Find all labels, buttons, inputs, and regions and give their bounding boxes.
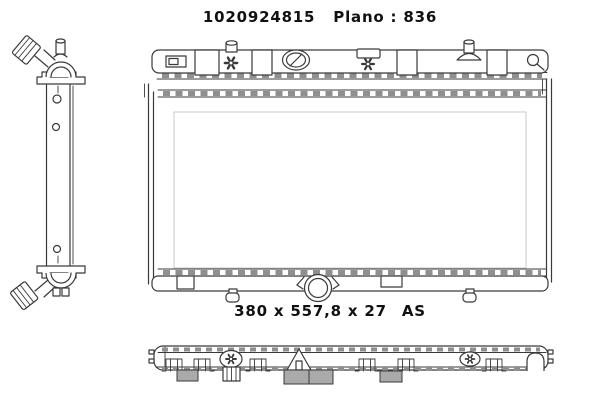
top-tank bbox=[152, 40, 548, 75]
sensor-boss-bottom-icon bbox=[460, 352, 480, 366]
bottom-dome bbox=[46, 273, 76, 288]
filler-neck-bottom-icon bbox=[220, 351, 242, 382]
bottom-tank bbox=[152, 275, 548, 303]
outlet-hose-barb-icon bbox=[10, 281, 39, 310]
mount-pad-4 bbox=[487, 50, 507, 75]
dimensions-code: AS bbox=[402, 302, 426, 320]
inlet-assembly bbox=[12, 35, 85, 84]
front-view bbox=[145, 40, 552, 302]
mount-pad-2 bbox=[252, 50, 272, 75]
bottom-view bbox=[149, 346, 553, 384]
radiator-cap-icon bbox=[283, 50, 310, 70]
bottom-bracket bbox=[381, 276, 402, 287]
inlet-hose-barb-icon bbox=[12, 35, 41, 65]
top-nipple-icon bbox=[54, 39, 67, 57]
bottom-port bbox=[177, 276, 194, 289]
mount-pad-1 bbox=[195, 50, 219, 75]
dimensions-label: 380 x 557,8 x 27AS bbox=[60, 302, 600, 320]
side-frame-column bbox=[47, 84, 74, 266]
mount-pad-3 bbox=[397, 50, 417, 75]
end-dome-icon bbox=[527, 353, 544, 371]
technical-drawing bbox=[0, 0, 600, 400]
side-view bbox=[10, 35, 85, 310]
core bbox=[145, 79, 552, 284]
top-dome bbox=[46, 62, 76, 77]
foot-pad-left bbox=[177, 370, 198, 381]
dimensions-size: 380 x 557,8 x 27 bbox=[234, 302, 387, 320]
radiator-catalog-drawing: 1020924815Plano : 836 bbox=[0, 0, 600, 400]
foot-pad-right bbox=[380, 371, 402, 382]
